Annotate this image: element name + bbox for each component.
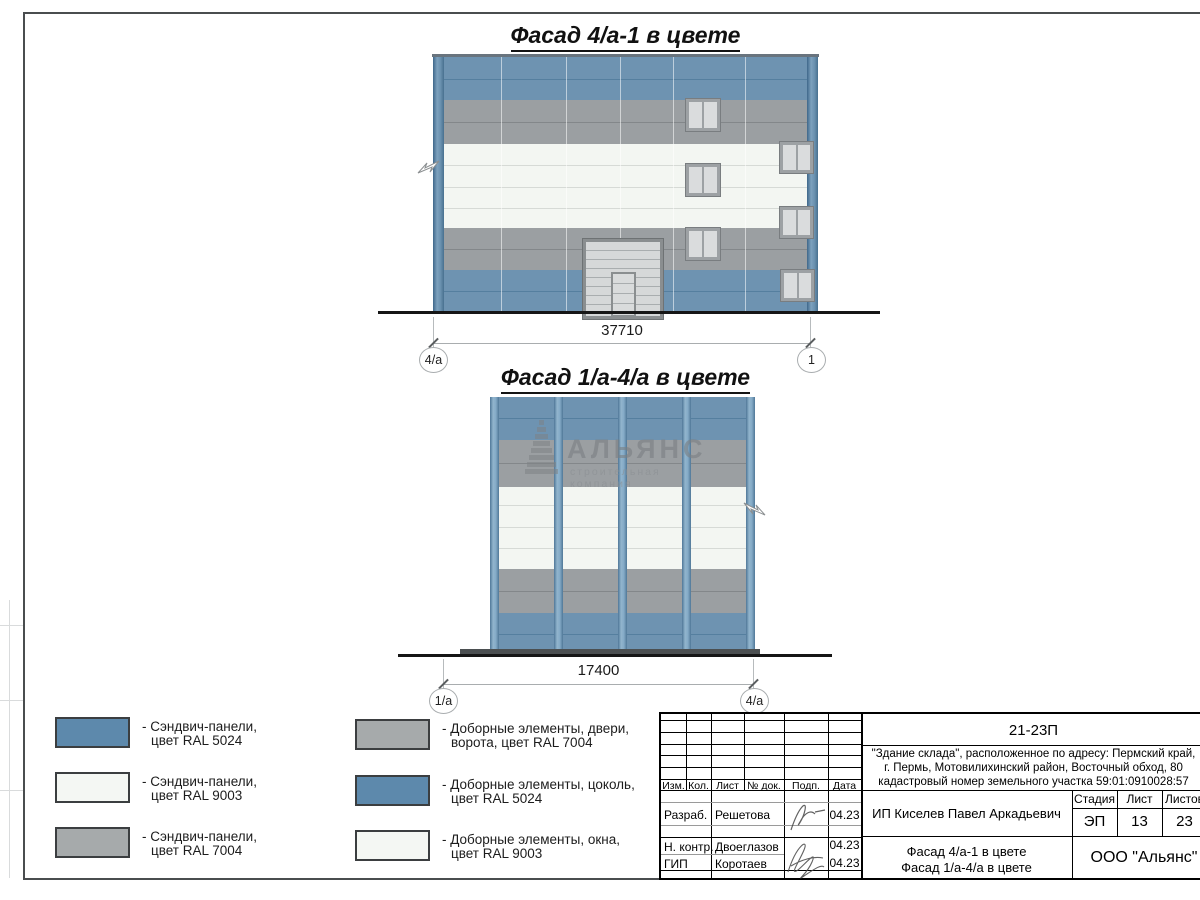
window [686,228,720,260]
panel-joint [433,187,818,188]
tb-name: Решетова [715,808,770,822]
tb-line [661,854,784,855]
break-mark [742,502,766,520]
tb-col-izm: Изм. [661,780,686,792]
legend-label: - Доборные элементы, цоколь,цвет RAL 502… [442,778,635,806]
panel-joint-vertical [673,57,674,313]
tb-col-list: Лист [711,780,744,792]
stage-value: ЭП [1072,813,1117,830]
legend-swatch-gray [355,719,430,750]
window [686,99,720,131]
tb-line [711,714,712,880]
sheets-value: 23 [1162,813,1200,830]
tb-line [861,745,1200,746]
legend-swatch-blue [55,717,130,748]
frame-margin-line [0,790,23,791]
dimension-line [443,684,754,685]
stage-label: Стадия [1072,792,1117,806]
panel-joint [433,208,818,209]
window [686,164,720,196]
legend-label: - Сэндвич-панели,цвет RAL 7004 [142,830,257,858]
title-block: 21-23П "Здание склада", расположенное по… [659,712,1200,880]
panel-joint [433,165,818,166]
ground-line [398,654,832,657]
tb-date: 04.23 [828,808,861,822]
sheet-value: 13 [1117,813,1162,830]
tb-col-podp: Подп. [784,780,828,792]
break-mark [417,160,441,178]
frame-margin-line [0,700,23,701]
customer-name: ИП Киселев Павел Аркадьевич [861,790,1072,836]
tb-name: Коротаев [715,857,767,871]
tb-line [661,755,861,756]
tb-date: 04.23 [828,856,861,870]
watermark-pyramid-icon [525,418,559,480]
legend-swatch-blue [355,775,430,806]
tb-name: Двоеглазов [715,840,779,854]
roof-coping [432,54,819,57]
panel-joint-vertical [501,57,502,313]
watermark-name: АЛЬЯНС [567,434,707,465]
signature [787,798,827,836]
tb-role: Н. контр. [664,840,714,854]
dimension-line [433,343,811,344]
window [780,207,813,238]
frame-margin-line [0,625,23,626]
project-code: 21-23П [861,719,1200,743]
frame-top [23,12,1200,14]
sheet-title: Фасад 4/а-1 в цвете Фасад 1/а-4/а в цвет… [861,844,1072,876]
company-name: ООО "Альянс" [1072,836,1200,880]
legend-label: - Сэндвич-панели,цвет RAL 5024 [142,720,257,748]
tb-line [661,732,861,733]
tb-line [661,825,861,826]
facade-mullion [490,397,499,656]
corner-pilaster [433,57,444,313]
tb-line [661,767,861,768]
drawing-sheet: Фасад 4/а-1 в цвете [0,0,1200,900]
company-watermark: АЛЬЯНС строительная компания [525,418,700,480]
panel-joint [433,79,818,80]
legend-swatch-gray [55,827,130,858]
tb-role: ГИП [664,857,688,871]
window [781,270,814,301]
sheets-label: Листов [1162,792,1200,806]
facade1-title: Фасад 4/а-1 в цвете [433,22,818,52]
project-address: "Здание склада", расположенное по адресу… [863,747,1200,789]
tb-line [661,802,861,803]
legend-label: - Сэндвич-панели,цвет RAL 9003 [142,775,257,803]
frame-margin-line [9,600,10,878]
legend-swatch-white [55,772,130,803]
ground-line [378,311,880,314]
watermark-tagline: строительная компания [570,466,700,490]
tb-line [661,744,861,745]
tb-line [1072,808,1200,809]
sheet-label: Лист [1117,792,1162,806]
tb-line [661,720,861,721]
facade1-elevation [433,57,818,313]
frame-left [23,12,25,880]
tb-col-data: Дата [828,780,861,792]
panel-joint-vertical [745,57,746,313]
legend-label: - Доборные элементы, двери,ворота, цвет … [442,722,629,750]
dimension-value: 17400 [443,662,754,679]
panel-band-white [433,144,818,228]
window [780,142,813,173]
axis-marker: 1/а [429,688,458,714]
signature [783,836,829,880]
panel-joint-vertical [566,57,567,313]
facade-mullion [746,397,755,656]
legend-label: - Доборные элементы, окна,цвет RAL 9003 [442,833,620,861]
axis-marker: 4/а [740,688,769,714]
tb-col-kol: Кол. [686,780,711,792]
tb-date: 04.23 [828,838,861,852]
legend-swatch-white [355,830,430,861]
tb-col-doc: № док. [744,780,784,792]
dimension-value: 37710 [433,322,811,339]
tb-role: Разраб. [664,808,707,822]
panel-joint [433,122,818,123]
sectional-gate [583,239,663,319]
facade2-title: Фасад 1/а-4/а в цвете [433,364,818,394]
